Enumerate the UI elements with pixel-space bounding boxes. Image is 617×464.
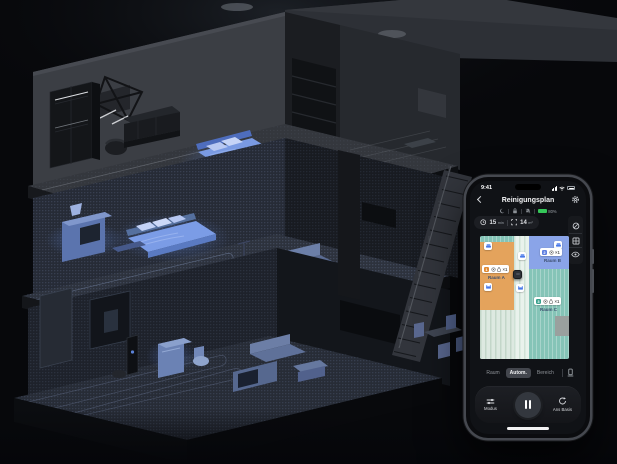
carpet-patch bbox=[555, 316, 569, 336]
wardrobe bbox=[50, 82, 100, 168]
home-indicator[interactable] bbox=[507, 427, 549, 430]
furniture-marker[interactable] bbox=[516, 284, 524, 292]
cleaning-map[interactable]: 1 ×1 Raum A 2 ×1 Raum B 3 ×1 Raum C bbox=[480, 236, 569, 359]
clock-time: 9:41 bbox=[481, 185, 492, 191]
room-c-label: Raum C bbox=[540, 307, 557, 312]
back-button[interactable] bbox=[477, 196, 484, 203]
status-bar: 9:41 bbox=[470, 183, 586, 193]
room-a-label: Raum A bbox=[488, 275, 505, 280]
ceiling-light bbox=[221, 3, 253, 11]
room-b-label: Raum B bbox=[544, 258, 561, 263]
dock-icon[interactable] bbox=[567, 368, 574, 377]
no-go-zone-icon[interactable] bbox=[569, 219, 582, 233]
room-b-order: 2 bbox=[542, 250, 547, 255]
room-a-multiplier: ×1 bbox=[503, 267, 508, 272]
area-icon bbox=[511, 219, 518, 226]
robot-position-marker[interactable] bbox=[513, 270, 522, 279]
cleaning-time-unit: min bbox=[498, 221, 504, 225]
vacuum-icon bbox=[543, 299, 548, 304]
room-b-badge[interactable]: 2 ×1 bbox=[540, 248, 562, 256]
mop-icon bbox=[497, 267, 501, 272]
signal-icon bbox=[552, 186, 558, 191]
cleaning-time-value: 15 bbox=[490, 220, 497, 226]
room-b-multiplier: ×1 bbox=[555, 250, 560, 255]
room-a-badge[interactable]: 1 ×1 bbox=[482, 265, 509, 273]
lock-icon bbox=[512, 208, 518, 214]
tab-autom[interactable]: Autom. bbox=[506, 368, 531, 378]
furniture-marker[interactable] bbox=[518, 252, 526, 260]
cleaning-area-unit: m² bbox=[528, 221, 532, 225]
dnd-moon-icon bbox=[499, 208, 505, 214]
map-view-icon[interactable] bbox=[569, 247, 582, 261]
gear-icon[interactable] bbox=[571, 195, 580, 204]
mode-label: Modus bbox=[484, 406, 497, 411]
wifi-icon bbox=[559, 186, 565, 191]
mute-icon bbox=[525, 208, 531, 214]
cleaning-stats: 15 min 14 m² bbox=[474, 216, 539, 229]
room-c-multiplier: ×1 bbox=[555, 299, 560, 304]
mode-tabs: Raum Autom. Bereich bbox=[470, 365, 586, 380]
robot-battery: 80% bbox=[538, 209, 557, 214]
pause-button[interactable] bbox=[515, 392, 541, 418]
split-room-icon[interactable] bbox=[569, 233, 582, 247]
battery-icon bbox=[567, 186, 575, 190]
clock-icon bbox=[480, 219, 487, 226]
robot-vacuum bbox=[112, 370, 126, 378]
device-status-row: 80% bbox=[470, 207, 586, 215]
cleaning-area-value: 14 bbox=[520, 220, 527, 226]
mop-icon bbox=[549, 299, 553, 304]
room-a-order: 1 bbox=[484, 267, 489, 272]
vacuum-icon bbox=[491, 267, 496, 272]
dock-return-button[interactable]: Ans Basis bbox=[553, 397, 572, 412]
phone-side-button bbox=[592, 249, 595, 264]
app-header: Reinigungsplan bbox=[470, 194, 586, 207]
tab-raum[interactable]: Raum bbox=[482, 368, 503, 378]
phone: 9:41 Reinigungsplan bbox=[466, 177, 590, 438]
unassigned-zone[interactable] bbox=[480, 310, 514, 359]
sliders-icon bbox=[486, 398, 495, 405]
phone-side-button bbox=[592, 269, 595, 293]
vacuum-icon bbox=[549, 250, 554, 255]
room-c-badge[interactable]: 3 ×1 bbox=[534, 297, 561, 305]
screenshot-root: 9:41 Reinigungsplan bbox=[0, 0, 617, 464]
control-bar: Modus Ans Basis bbox=[475, 386, 581, 423]
furniture-marker[interactable] bbox=[484, 242, 492, 250]
door bbox=[40, 288, 72, 368]
dock-return-label: Ans Basis bbox=[553, 407, 572, 412]
furniture-marker[interactable] bbox=[484, 283, 492, 291]
page-title: Reinigungsplan bbox=[502, 197, 555, 204]
map-tools bbox=[568, 216, 583, 264]
mode-button[interactable]: Modus bbox=[484, 398, 497, 412]
room-c-order: 3 bbox=[536, 299, 541, 304]
robot-battery-icon bbox=[538, 209, 547, 214]
robot-battery-percent: 80% bbox=[548, 209, 556, 214]
tab-bereich[interactable]: Bereich bbox=[533, 368, 558, 378]
return-to-dock-icon bbox=[558, 397, 567, 405]
phone-screen: 9:41 Reinigungsplan bbox=[470, 181, 586, 434]
